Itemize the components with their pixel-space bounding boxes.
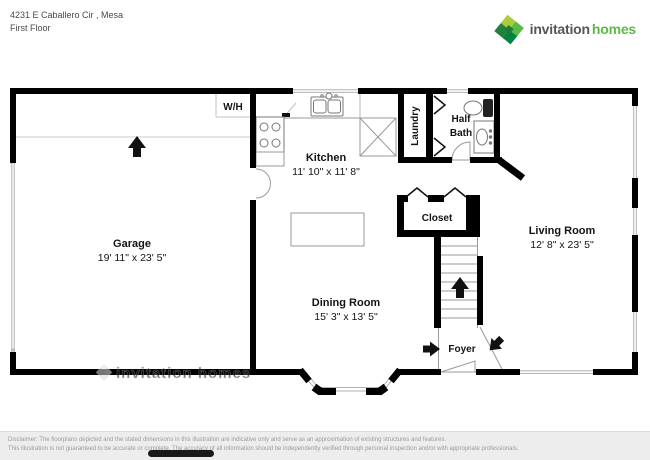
closet-bifold-icon [406, 188, 428, 197]
counter-tick [282, 113, 290, 117]
entry-arrow-icon [484, 333, 507, 356]
room-label-dining: Dining Room [312, 297, 381, 309]
foyer-arrow-icon [423, 342, 440, 357]
toilet-tank-icon [483, 99, 493, 117]
disclaimer-line2: This illustration is not guaranteed to b… [8, 445, 650, 454]
room-label-laundry: Laundry [410, 106, 421, 146]
refrigerator-space-icon [360, 118, 396, 156]
stove-icon [256, 117, 284, 152]
half-bath-door-arc [452, 142, 470, 160]
watermark-text: invitation homes [116, 365, 251, 382]
kitchen-sink-icon [311, 93, 343, 116]
room-label-living: Living Room [529, 225, 596, 237]
floorplan-page: 4231 E Caballero Cir , Mesa First Floor … [0, 0, 650, 460]
bay-window [300, 370, 400, 392]
floorplan-drawing: W/H Garage 19' 11" x 23' 5" Kitchen 11' … [0, 0, 650, 460]
room-label-kitchen: Kitchen [306, 152, 347, 164]
footer-disclaimer: Disclaimer: The floorplans depicted and … [0, 431, 650, 460]
room-label-half-bath-2: Bath [450, 128, 472, 139]
garage-door [11, 161, 15, 353]
counter-below-stove [256, 152, 284, 166]
room-label-garage: Garage [113, 238, 151, 250]
front-door-leaf [441, 361, 475, 372]
room-dims-kitchen: 11' 10" x 11' 8" [292, 166, 360, 178]
room-label-closet: Closet [422, 213, 453, 224]
watermark: invitation homes [96, 364, 251, 382]
garage-kitchen-door-arc [256, 169, 271, 198]
room-dims-living: 12' 8" x 23' 5" [530, 239, 594, 251]
closet-bifold-icon [444, 188, 466, 197]
vanity-sink-icon [474, 121, 494, 153]
up-arrow-icon-stairs [451, 277, 469, 298]
room-dims-garage: 19' 11" x 23' 5" [98, 252, 167, 264]
kitchen-island [291, 213, 364, 246]
label-water-heater: W/H [223, 102, 242, 113]
up-arrow-icon-garage [128, 136, 146, 157]
laundry-bifold-icon [434, 138, 445, 156]
room-label-half-bath-1: Half [452, 114, 472, 125]
room-label-foyer: Foyer [448, 344, 475, 355]
disclaimer-line1: Disclaimer: The floorplans depicted and … [8, 436, 650, 445]
toilet-icon [464, 101, 482, 115]
laundry-bifold-icon [434, 96, 445, 114]
room-dims-dining: 15' 3" x 13' 5" [314, 311, 378, 323]
footer-badge [148, 450, 214, 457]
